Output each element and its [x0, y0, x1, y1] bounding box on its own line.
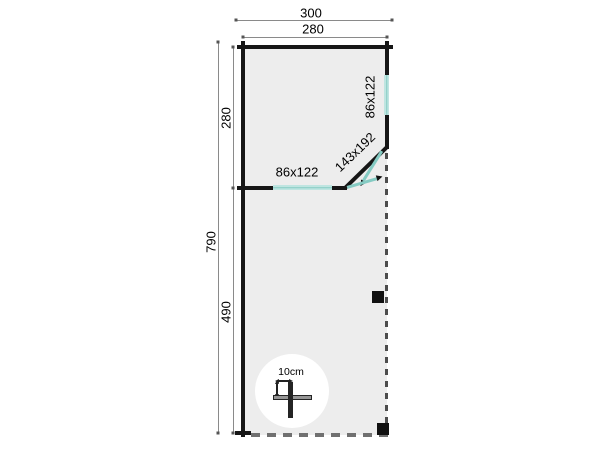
- dim-tick: [217, 432, 220, 435]
- dim-tick: [232, 187, 235, 190]
- left-wall: [241, 41, 245, 437]
- dim-line-width-inner: [243, 37, 387, 38]
- dim-tick: [242, 36, 245, 39]
- floor-plan-drawing: 300 280 790 280 490 86x122 86x122 143x19…: [0, 0, 600, 450]
- window-front: [273, 185, 332, 190]
- dim-label-height-lower: 490: [219, 301, 234, 323]
- bottom-dashed-edge: [251, 433, 393, 437]
- dim-tick: [232, 46, 235, 49]
- post-cross-vertical-beam: [288, 382, 293, 418]
- right-wall-lower: [385, 115, 389, 149]
- window-front-label: 86x122: [276, 165, 319, 180]
- bottom-wall-stub: [235, 431, 251, 435]
- detail-height-arrow: [276, 384, 278, 394]
- dim-tick: [235, 19, 238, 22]
- dim-tick: [391, 19, 394, 22]
- dim-tick: [217, 41, 220, 44]
- right-wall-upper: [385, 41, 389, 75]
- dim-label-height-outer: 790: [204, 231, 219, 253]
- window-side-label: 86x122: [363, 76, 378, 119]
- dim-label-height-upper: 280: [219, 107, 234, 129]
- dim-label-width-outer: 300: [300, 6, 322, 21]
- post-detail-label: 10cm: [278, 366, 304, 378]
- post-marker-mid: [372, 291, 384, 303]
- window-side: [384, 75, 389, 115]
- post-marker-bottom: [377, 423, 389, 435]
- interior-wall-left: [237, 186, 273, 190]
- dim-tick: [232, 432, 235, 435]
- right-dashed-edge: [385, 153, 388, 437]
- dim-label-width-inner: 280: [302, 22, 324, 37]
- dim-tick: [386, 36, 389, 39]
- top-wall: [237, 45, 393, 49]
